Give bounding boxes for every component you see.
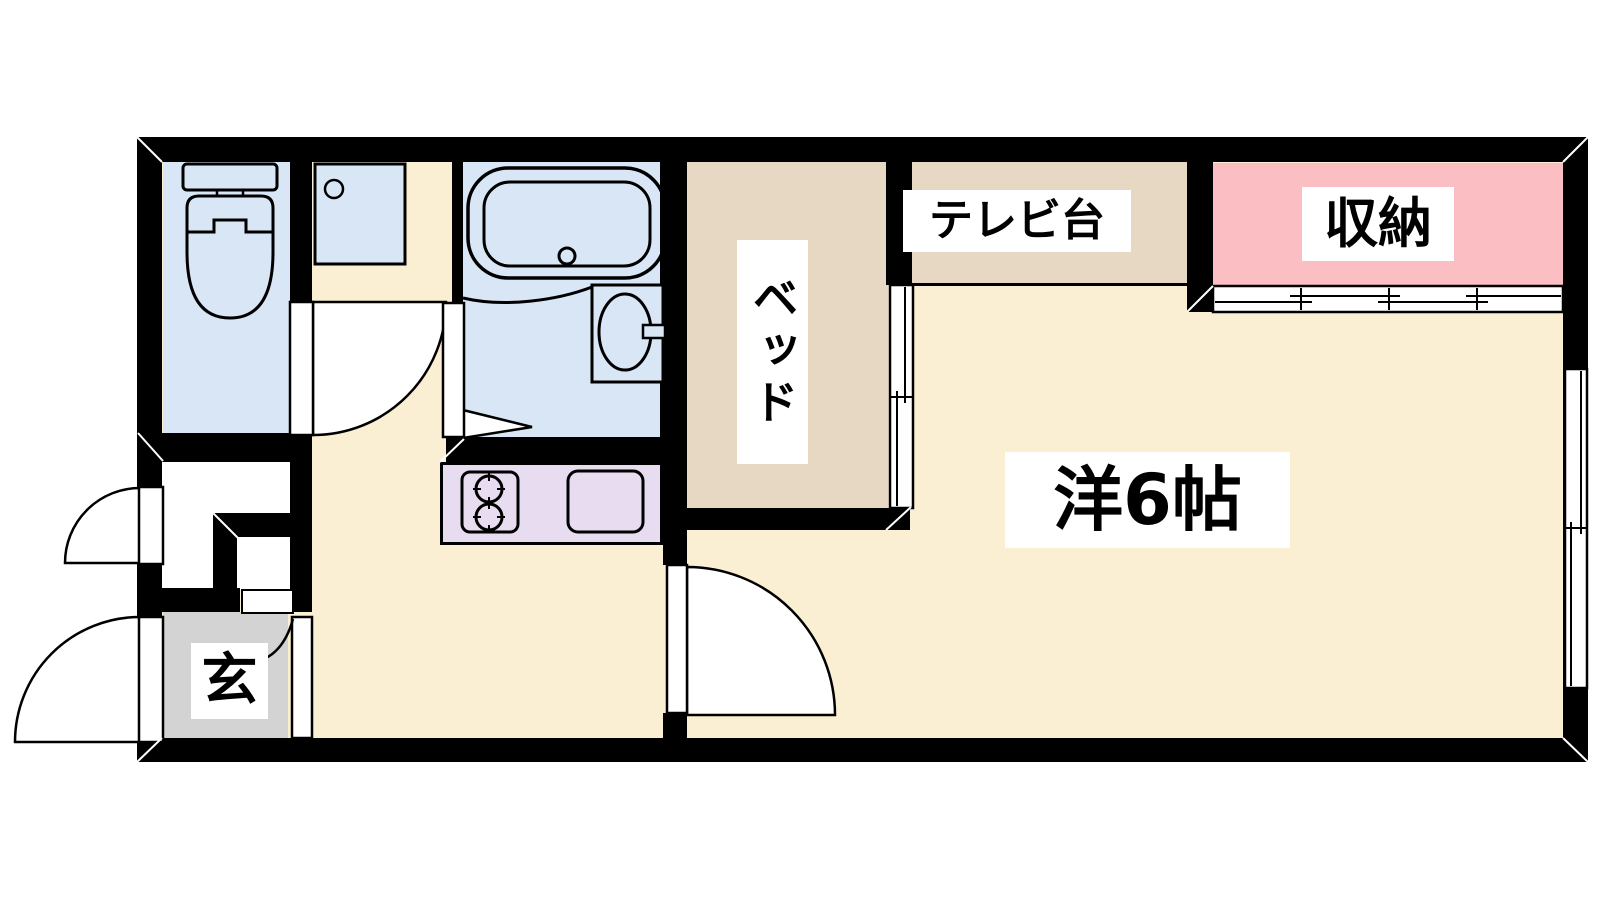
entrance-label-text: 玄 xyxy=(202,653,258,709)
bathroom xyxy=(463,162,663,440)
wall-genkan-top xyxy=(162,588,240,612)
western-room-label: 洋6帖 xyxy=(1005,452,1290,548)
wall-door-jamb-upper xyxy=(663,530,687,565)
entrance-label: 玄 xyxy=(191,643,268,719)
kitchen-counter xyxy=(440,462,663,545)
wall-niche-horizontal xyxy=(237,513,290,537)
wall-toilet-right-lower xyxy=(290,435,312,612)
bed-label: ベッド xyxy=(737,240,808,464)
wall-bath-right-bed-left xyxy=(660,162,687,530)
wall-closet-left xyxy=(1187,162,1213,312)
western-room-label-text: 洋6帖 xyxy=(1053,465,1242,535)
wall-bed-bottom xyxy=(660,508,910,530)
toilet-room xyxy=(163,162,290,433)
wall-bath-left xyxy=(452,162,463,303)
entry-niche-top xyxy=(162,462,290,513)
exterior-storage-door-swing xyxy=(65,488,140,563)
storage-label: 収納 xyxy=(1302,187,1454,261)
floor-plan: テレビ台 収納 ベッド 洋6帖 玄 xyxy=(0,0,1600,900)
entrance-door-swing xyxy=(15,617,140,742)
bed-label-text: ベッド xyxy=(750,274,796,430)
storage-label-text: 収納 xyxy=(1324,197,1432,251)
wall-bath-bottom xyxy=(446,437,677,462)
entry-niche-right xyxy=(237,537,290,590)
tv-stand-label: テレビ台 xyxy=(903,190,1131,252)
tv-stand-label-text: テレビ台 xyxy=(929,199,1105,243)
wall-toilet-right-upper xyxy=(290,162,312,302)
wall-door-jamb-lower xyxy=(663,713,687,738)
entry-niche-left xyxy=(162,513,213,588)
